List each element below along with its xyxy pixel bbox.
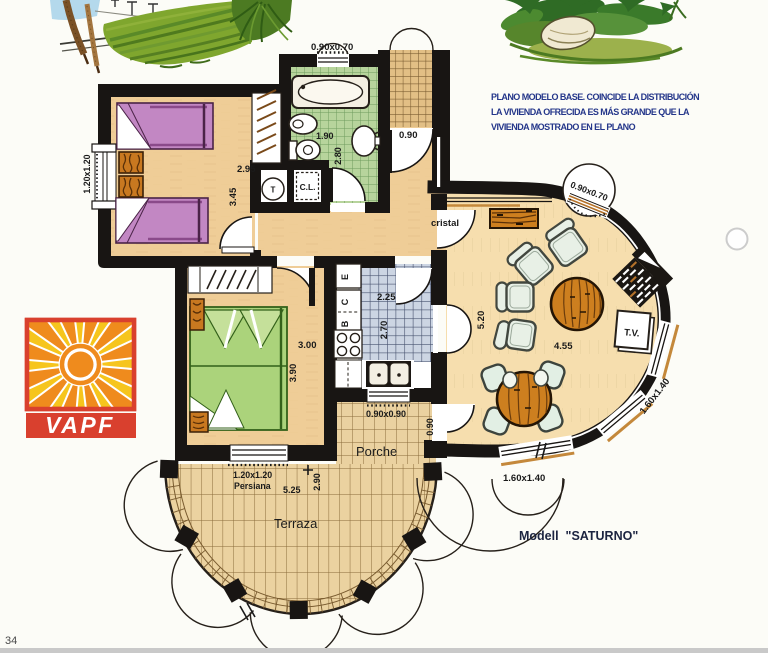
svg-text:T.V.: T.V. <box>624 327 640 339</box>
svg-text:1.20x1.20: 1.20x1.20 <box>233 470 272 480</box>
svg-text:3.90: 3.90 <box>288 364 299 383</box>
svg-text:T: T <box>271 186 276 195</box>
svg-text:0.90: 0.90 <box>425 418 435 436</box>
svg-text:2.90: 2.90 <box>312 473 322 491</box>
svg-text:VAPF: VAPF <box>45 412 115 438</box>
svg-text:VIVIENDA MOSTRADO EN EL PLANO: VIVIENDA MOSTRADO EN EL PLANO <box>491 122 636 132</box>
svg-text:C.L.: C.L. <box>300 182 316 192</box>
svg-text:3.00: 3.00 <box>298 340 317 351</box>
svg-text:C: C <box>340 298 350 305</box>
svg-text:5.25: 5.25 <box>283 485 301 495</box>
svg-text:0.90x0.70: 0.90x0.70 <box>311 42 353 53</box>
svg-text:3.45: 3.45 <box>228 187 239 206</box>
svg-text:1.20x1.20: 1.20x1.20 <box>82 154 92 193</box>
svg-text:LA VIVIENDA OFRECIDA ES MÁS GR: LA VIVIENDA OFRECIDA ES MÁS GRANDE QUE L… <box>491 107 690 117</box>
svg-text:Porche: Porche <box>356 444 397 459</box>
svg-text:cristal: cristal <box>431 218 459 229</box>
svg-text:PLANO MODELO BASE. COINCIDE LA: PLANO MODELO BASE. COINCIDE LA DISTRIBUC… <box>491 91 699 102</box>
svg-text:1.90: 1.90 <box>316 131 334 141</box>
svg-text:2.80: 2.80 <box>333 147 343 165</box>
svg-text:Persiana: Persiana <box>234 481 271 491</box>
svg-text:Modell "SATURNO": Modell "SATURNO" <box>519 529 638 543</box>
svg-text:34: 34 <box>5 635 17 647</box>
svg-text:0.90: 0.90 <box>399 130 418 141</box>
svg-text:4.55: 4.55 <box>554 341 573 352</box>
svg-text:2.25: 2.25 <box>377 292 396 303</box>
svg-text:0.90x0.90: 0.90x0.90 <box>366 409 406 419</box>
svg-text:5.20: 5.20 <box>476 311 487 330</box>
svg-text:2.95: 2.95 <box>237 164 256 175</box>
svg-text:Terraza: Terraza <box>274 516 318 531</box>
svg-text:B: B <box>340 320 350 327</box>
svg-text:2.70: 2.70 <box>379 321 390 340</box>
svg-text:1.60x1.40: 1.60x1.40 <box>503 473 545 484</box>
svg-text:E: E <box>340 274 350 280</box>
